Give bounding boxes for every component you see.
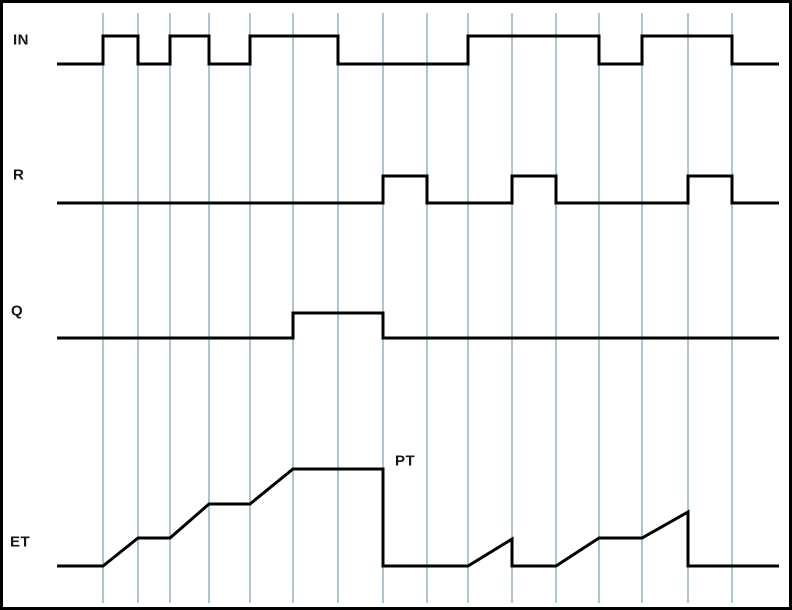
in-signal-label: IN — [13, 32, 29, 49]
et-signal-label: ET — [10, 534, 30, 551]
timing-diagram-canvas — [0, 0, 792, 610]
r-signal-label: R — [13, 167, 24, 184]
timing-diagram: IN R Q ET PT — [0, 0, 792, 610]
pt-threshold-label: PT — [395, 453, 415, 470]
figure-border — [2, 2, 791, 609]
q-signal-label: Q — [11, 303, 23, 320]
